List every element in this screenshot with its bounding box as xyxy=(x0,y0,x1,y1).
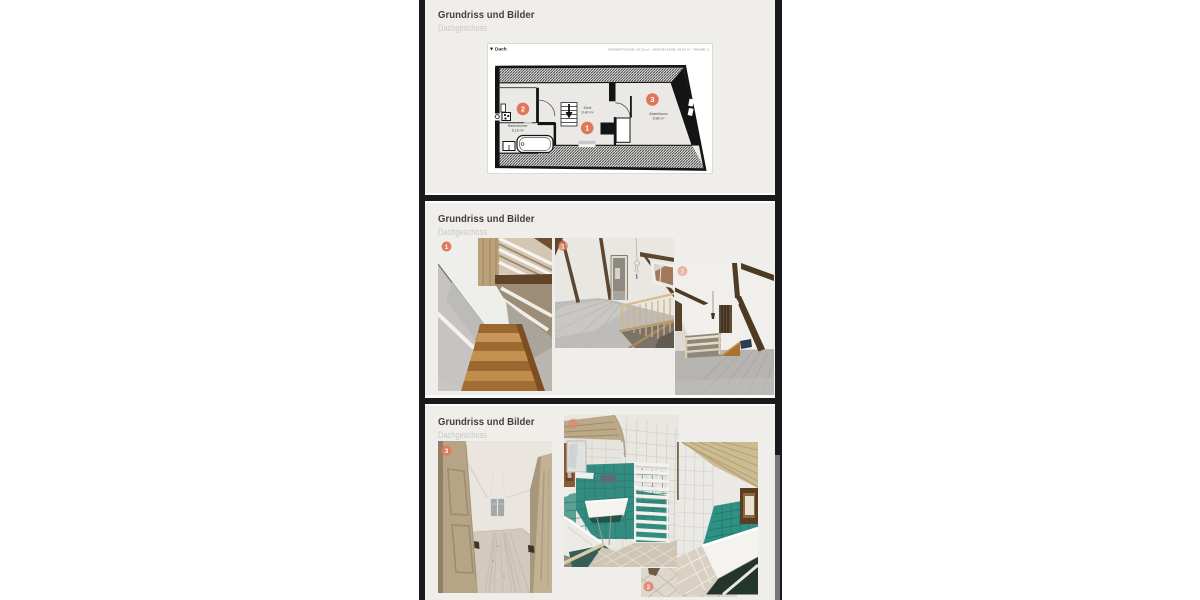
svg-text:1: 1 xyxy=(561,243,565,250)
svg-text:Diele: Diele xyxy=(584,106,592,110)
svg-text:2: 2 xyxy=(521,105,525,114)
svg-text:1: 1 xyxy=(445,244,449,251)
svg-text:2: 2 xyxy=(647,584,651,591)
svg-text:3: 3 xyxy=(650,95,654,104)
svg-text:2: 2 xyxy=(680,268,684,275)
svg-text:8.40 m²: 8.40 m² xyxy=(582,111,595,115)
svg-text:3: 3 xyxy=(445,448,449,455)
svg-text:Abstellraum: Abstellraum xyxy=(649,112,668,116)
svg-text:GESAMTFLÄCHE: 28.53 m² · WOH: GESAMTFLÄCHE: 28.53 m² · WOHNFLÄCHE: 28.… xyxy=(608,48,709,52)
svg-text:Badezimmer: Badezimmer xyxy=(508,124,528,128)
svg-text:1: 1 xyxy=(585,124,589,133)
svg-text:8.98 m²: 8.98 m² xyxy=(653,117,666,121)
svg-text:6.16 m²: 6.16 m² xyxy=(512,129,525,133)
svg-text:Dach: Dach xyxy=(495,47,507,53)
